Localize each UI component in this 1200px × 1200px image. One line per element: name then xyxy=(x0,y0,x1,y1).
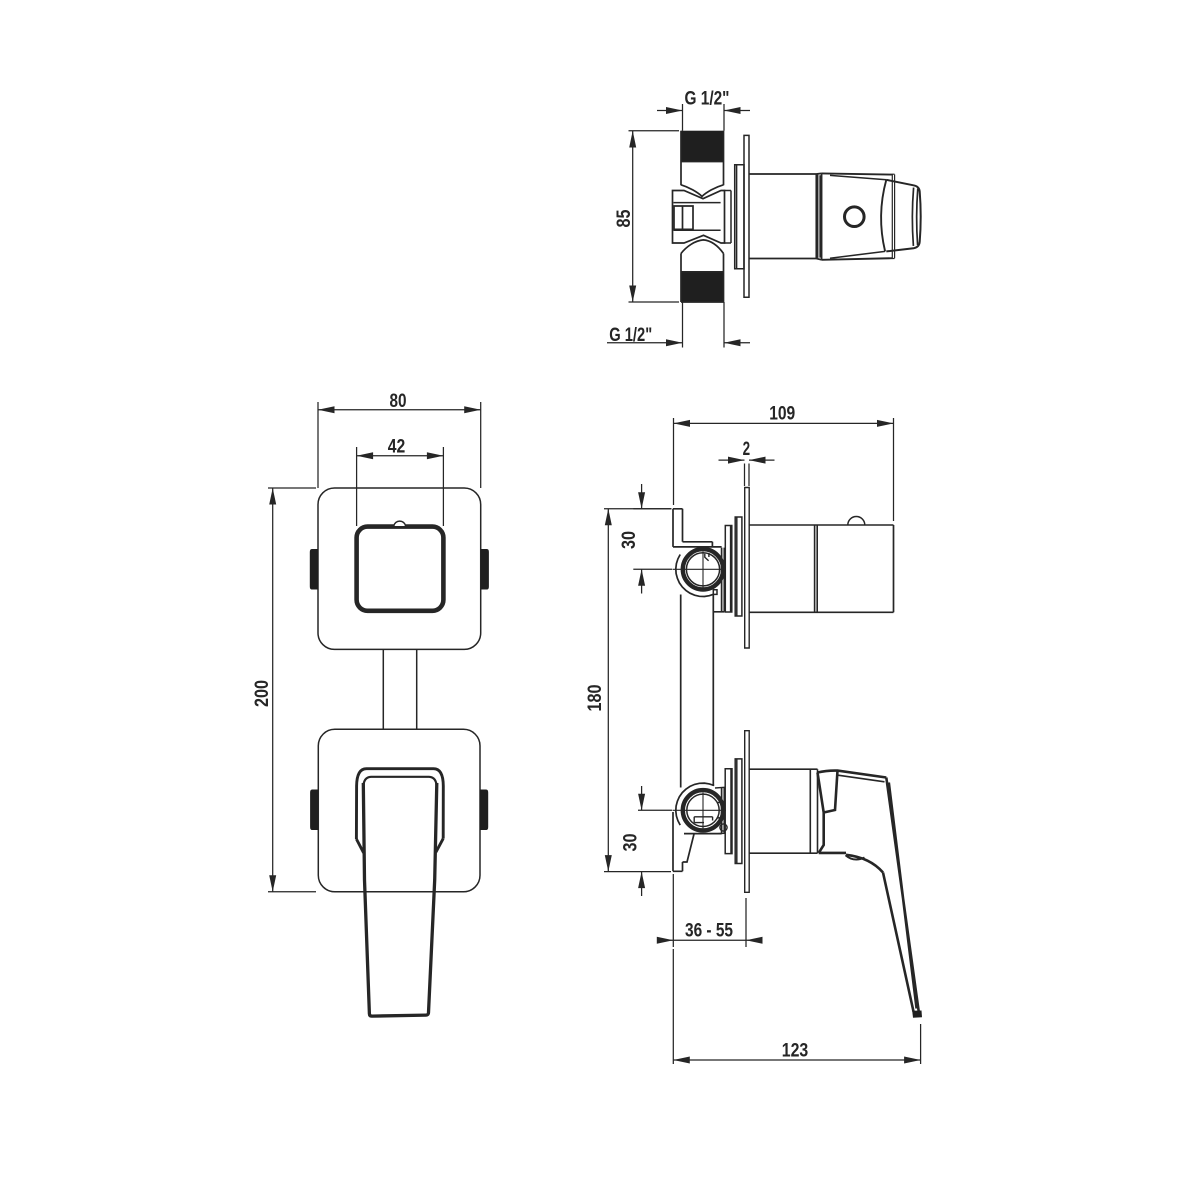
svg-text:36 - 55: 36 - 55 xyxy=(685,920,733,942)
svg-text:30: 30 xyxy=(620,833,642,851)
svg-text:123: 123 xyxy=(782,1040,809,1062)
svg-text:30: 30 xyxy=(618,531,640,549)
svg-text:2: 2 xyxy=(743,438,751,460)
svg-text:180: 180 xyxy=(584,684,606,711)
svg-text:42: 42 xyxy=(388,436,406,458)
svg-text:200: 200 xyxy=(251,680,273,707)
svg-text:80: 80 xyxy=(390,390,407,412)
svg-text:109: 109 xyxy=(769,403,795,425)
svg-text:G 1/2": G 1/2" xyxy=(685,88,730,110)
svg-text:G 1/2": G 1/2" xyxy=(609,324,652,346)
svg-text:85: 85 xyxy=(613,209,635,227)
